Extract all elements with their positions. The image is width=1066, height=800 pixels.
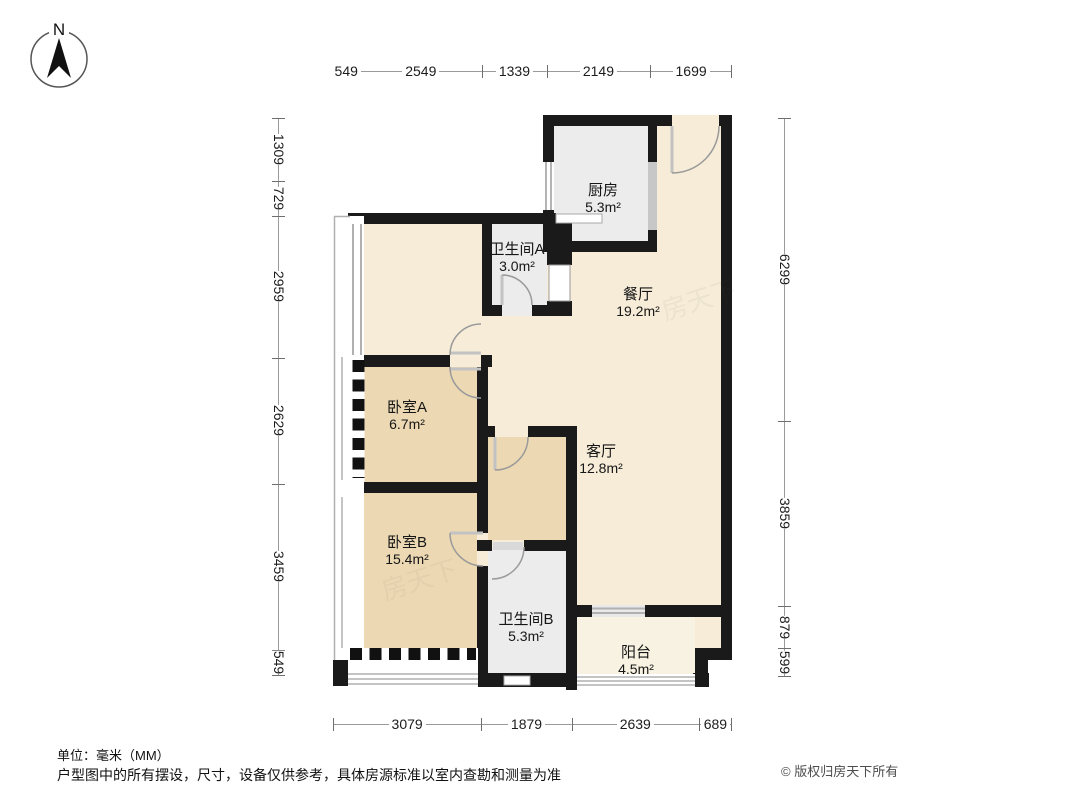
disclaimer-note: 户型图中的所有摆设，尺寸，设备仅供参考，具体房源标准以室内查勘和测量为准 (57, 765, 561, 785)
dim-value: 1699 (673, 64, 710, 79)
floor-plan-drawing (0, 0, 1066, 800)
dimension-scale-top: 549 2549 1339 2149 1699 (333, 64, 732, 79)
dim-value: 2639 (617, 717, 654, 732)
dim-value: 2629 (268, 405, 289, 436)
room-label-dining: 餐厅 19.2m² (616, 286, 660, 320)
dim-value: 599 (774, 651, 795, 674)
room-label-living: 客厅 12.8m² (579, 443, 623, 477)
north-compass-icon: N (26, 14, 92, 94)
dim-value: 729 (268, 187, 289, 210)
dim-value: 689 (701, 717, 730, 732)
dim-value: 6299 (774, 254, 795, 285)
copyright-note: © 版权归房天下所有 (781, 761, 898, 780)
dim-value: 2959 (268, 271, 289, 302)
dimension-scale-right: 6299 3859 879 599 (777, 118, 792, 677)
dim-value: 1879 (508, 717, 545, 732)
room-label-bathroom-a: 卫生间A 3.0m² (489, 241, 544, 275)
room-label-kitchen: 厨房 5.3m² (585, 182, 621, 216)
room-label-bedroom-b: 卧室B 15.4m² (385, 534, 429, 568)
unit-note: 单位：毫米（MM） (57, 745, 170, 764)
dim-value: 2149 (580, 64, 617, 79)
dim-value: 1339 (496, 64, 533, 79)
north-arrow (47, 38, 71, 78)
dim-value: 549 (332, 64, 361, 79)
dim-value: 879 (774, 615, 795, 638)
dim-value: 549 (268, 651, 289, 674)
room-label-bedroom-a: 卧室A 6.7m² (387, 399, 427, 433)
dimension-scale-left: 1309 729 2959 2629 3459 549 (271, 118, 286, 676)
floor-plan-page: N 房天下 房天下 厨房 5.3m² 卫生间A 3.0m² 餐厅 19.2m² … (0, 0, 1066, 800)
dim-value: 2549 (402, 64, 439, 79)
dimension-scale-bottom: 3079 1879 2639 689 (333, 717, 732, 732)
room-label-balcony: 阳台 4.5m² (618, 644, 654, 678)
dim-value: 3859 (774, 498, 795, 529)
dim-value: 3459 (268, 551, 289, 582)
dim-value: 1309 (268, 134, 289, 165)
compass-north-label: N (53, 20, 65, 39)
dim-value: 3079 (389, 717, 426, 732)
room-label-bathroom-b: 卫生间B 5.3m² (498, 611, 553, 645)
